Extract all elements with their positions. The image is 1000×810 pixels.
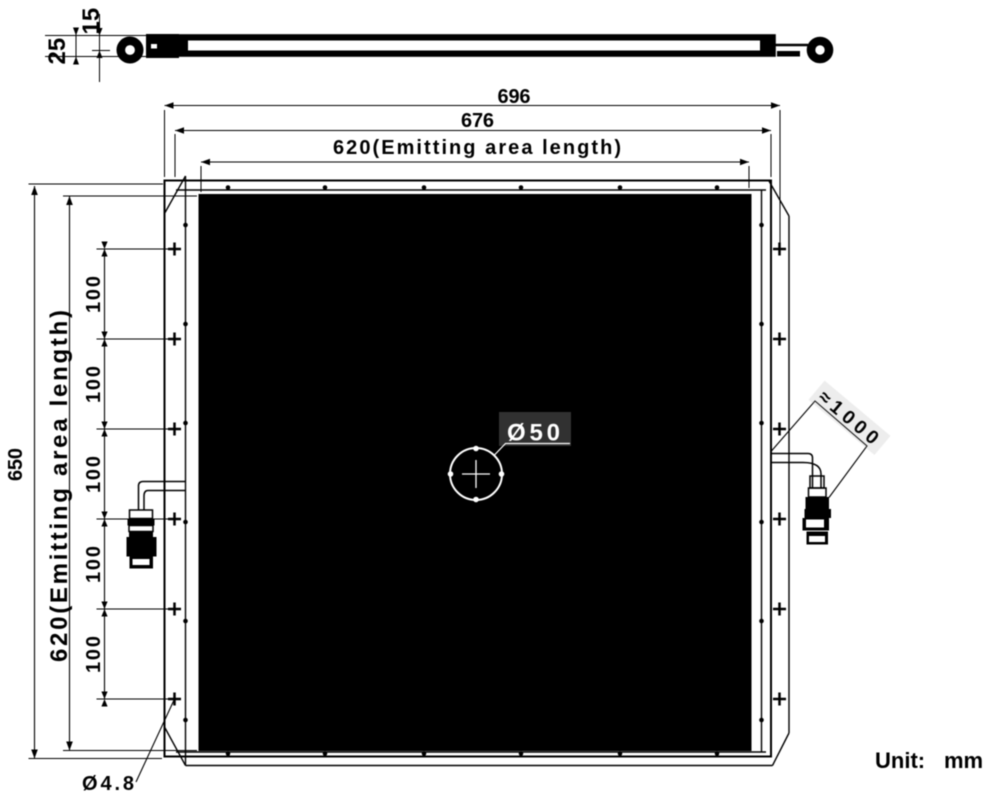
svg-text:Unit:: Unit: [875, 748, 925, 773]
svg-text:676: 676 [461, 110, 494, 132]
svg-text:620(Emitting area length): 620(Emitting area length) [46, 310, 73, 662]
svg-text:25: 25 [44, 38, 71, 65]
svg-text:Ø4.8: Ø4.8 [82, 773, 134, 795]
svg-text:620(Emitting area length): 620(Emitting area length) [333, 137, 621, 159]
svg-text:696: 696 [498, 86, 531, 108]
svg-text:100: 100 [83, 276, 105, 313]
svg-text:650: 650 [5, 448, 27, 481]
svg-text:100: 100 [83, 456, 105, 493]
svg-text:100: 100 [83, 546, 105, 583]
svg-text:Ø50: Ø50 [507, 420, 560, 447]
svg-text:15: 15 [78, 8, 105, 35]
svg-text:mm: mm [944, 748, 983, 773]
svg-text:100: 100 [83, 636, 105, 673]
svg-text:100: 100 [83, 366, 105, 403]
